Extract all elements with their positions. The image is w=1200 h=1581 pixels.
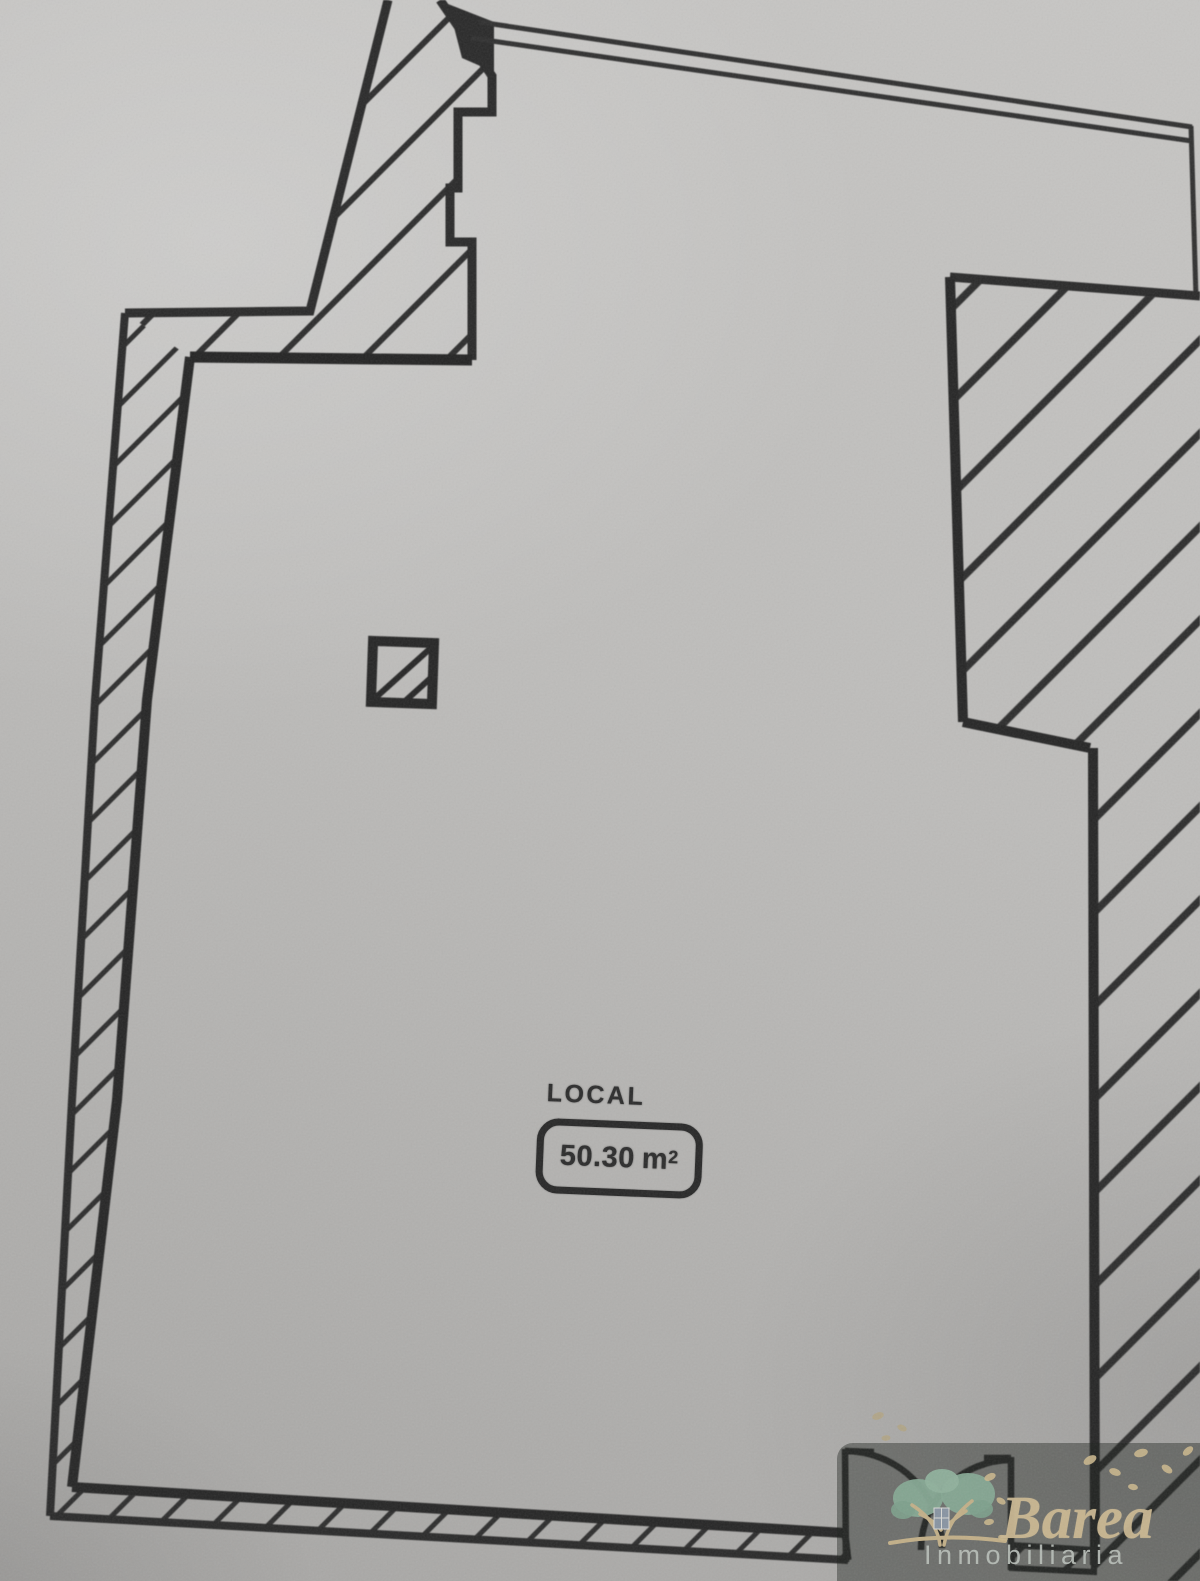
floor-plan-drawing <box>0 0 1200 1581</box>
perimeter-wall-left-bottom <box>50 313 848 1560</box>
area-unit: m <box>641 1143 669 1176</box>
floorplan-photo: { "room_label": { "name": "LOCAL", "area… <box>0 0 1200 1581</box>
area-value: 50.30m2 <box>559 1140 679 1178</box>
area-exponent: 2 <box>668 1147 679 1167</box>
right-edge-line <box>1191 126 1196 298</box>
room-area-label: LOCAL 50.30m2 <box>535 1079 705 1200</box>
perimeter-wall-top <box>125 0 494 360</box>
party-wall-right <box>950 277 1200 1581</box>
watermark-subtitle: Inmobiliaria <box>924 1540 1128 1571</box>
pillar <box>371 641 437 705</box>
area-number: 50.30 <box>559 1140 635 1175</box>
storefront-double-line <box>471 22 1196 298</box>
area-box: 50.30m2 <box>535 1118 704 1200</box>
room-name: LOCAL <box>546 1079 705 1114</box>
